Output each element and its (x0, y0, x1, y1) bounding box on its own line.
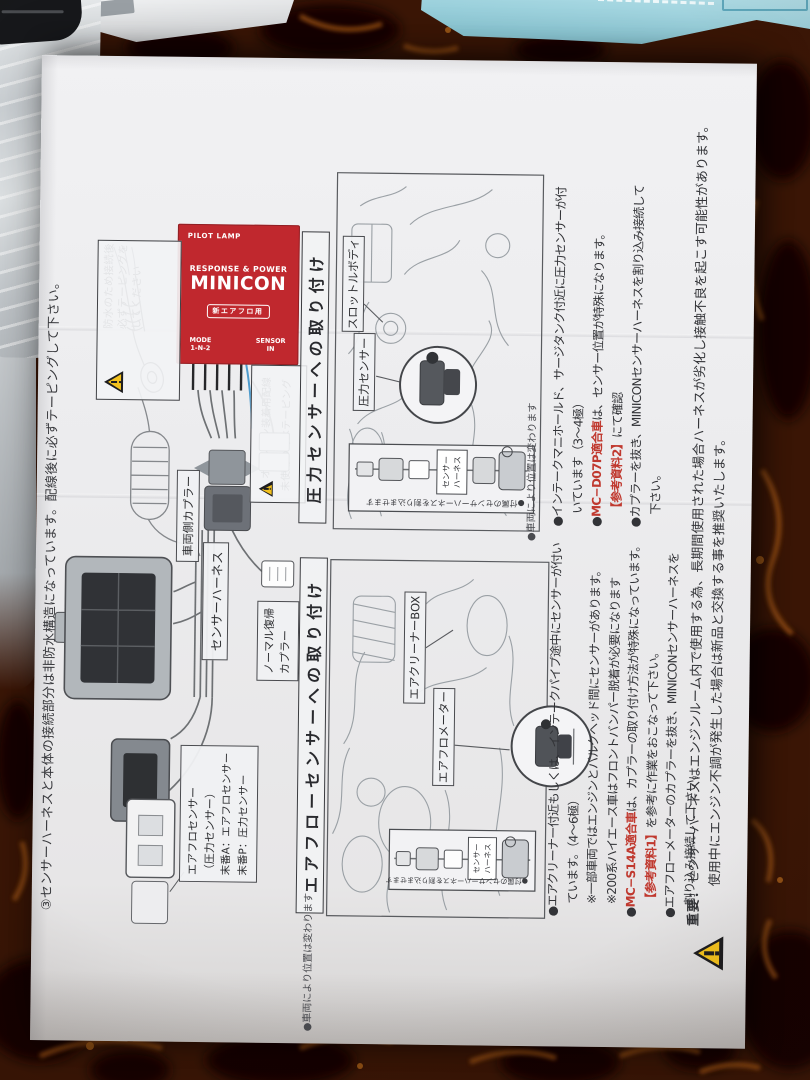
pressure-inset: センサー ハーネス ●付属のセンサーハーネスを割り込ませます (348, 444, 534, 513)
manual-page: センサー ハーネス ●付属のセンサーハーネスを割り込ませます センサー ハーネス (30, 55, 757, 1049)
inset-label-line1: センサー (442, 456, 451, 488)
mode-positions: 1-N-2 (189, 344, 211, 352)
device-name: MINICON (177, 273, 299, 295)
minicon-device-face: PILOT LAMP RESPONSE & POWER MINICON 新エアフ… (176, 224, 300, 365)
pressure-section-title: 圧力センサーへの取り付け (298, 231, 330, 523)
minicon-device: PILOT LAMP RESPONSE & POWER MINICON 新エアフ… (176, 224, 300, 365)
airflow-sensor-label-box: エアフロセンサー （圧力センサー） 末番A：エアフロセンサー 末番P：圧力センサ… (179, 745, 259, 883)
airflow-position-note: ●車両により位置は変わります (298, 893, 315, 1032)
leader-line (455, 745, 510, 750)
inset-label-line2: ハーネス (453, 456, 462, 488)
device-badge: 新エアフロ用 (206, 304, 269, 319)
leader-line (364, 304, 383, 322)
inset-label-line2: ハーネス (483, 844, 492, 874)
inset-label-line1: センサー (472, 843, 481, 873)
device-pins (193, 364, 241, 391)
airflow-bullet-list: ●エアクリーナー付近もしくは、インテークパイプ途中にセンサーが付い ています。（… (544, 539, 705, 918)
warning-icon (693, 936, 723, 970)
leader-line (376, 376, 402, 382)
inset-caption: ●付属のセンサーハーネスを割り込ませます (385, 875, 528, 886)
airflow-section-title: エアフローセンサーへの取り付け (296, 557, 328, 913)
pressure-position-note: ●車両により位置は変わります (522, 402, 539, 541)
airflow-inset: センサー ハーネス ●付属のセンサーハーネスを割り込ませます (385, 829, 535, 891)
inset-caption: ●付属のセンサーハーネスを割り込ませます (366, 497, 525, 509)
pressure-sensor-label: 圧力センサー (353, 333, 376, 411)
pressure-sensor-highlight (400, 346, 477, 423)
vehicle-coupler-label: 車両側カプラー (176, 470, 200, 562)
warning-icon (104, 371, 123, 393)
folder-outline-rect (722, 0, 808, 11)
aircleaner-box-label: エアクリーナーBOX (403, 592, 426, 704)
plastic-bag-edge (0, 300, 36, 690)
normal-return-coupler-label: ノーマル復帰 カプラー (256, 601, 299, 682)
sensor-harness-label: センサーハーネス (202, 542, 229, 660)
sensor-in-label: IN (256, 345, 286, 353)
airflow-meter-label: エアフロメーター (432, 688, 455, 786)
pressure-bullet-list: ●インテークマニホールド、サージタンク付近に圧力センサーが付 いています（3～4… (548, 184, 669, 528)
pilot-lamp-label: PILOT LAMP (188, 232, 241, 241)
sensor-label: SENSOR (256, 337, 286, 345)
leader-line (426, 630, 453, 648)
folder-dashed-line (598, 0, 714, 5)
throttle-body-label: スロットルボディ (342, 236, 365, 332)
mode-label: MODE (190, 336, 212, 344)
warning-icon (259, 481, 273, 497)
photo-scene: センサー ハーネス ●付属のセンサーハーネスを割り込ませます センサー ハーネス (0, 0, 810, 1080)
